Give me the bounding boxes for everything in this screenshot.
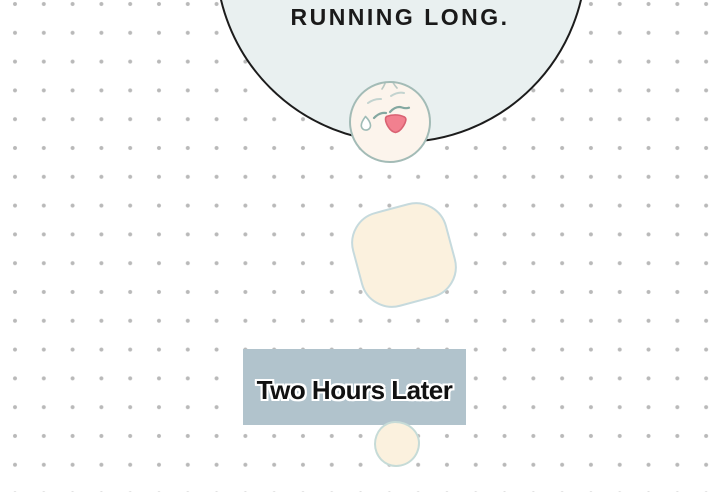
comic-panel: RUNNING LONG. Two Hours Later (0, 0, 720, 492)
scene-transition-shape (344, 195, 464, 315)
small-cream-blob (374, 421, 420, 467)
caption-box: Two Hours Later (243, 349, 466, 425)
character-face (340, 72, 440, 172)
speech-bubble-text: RUNNING LONG. (260, 4, 540, 31)
caption-text: Two Hours Later (257, 369, 453, 406)
